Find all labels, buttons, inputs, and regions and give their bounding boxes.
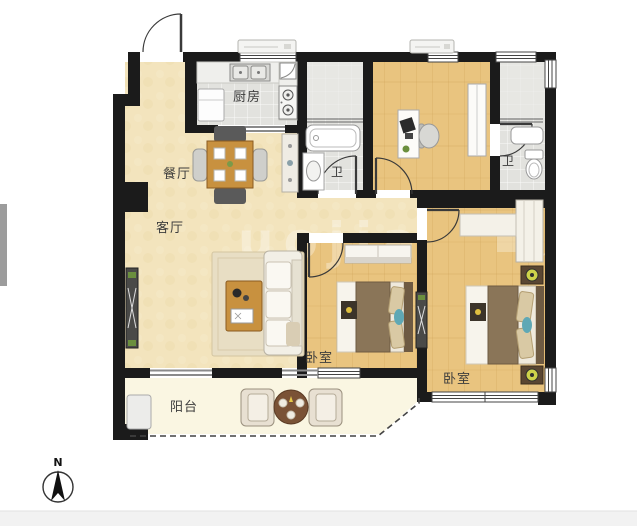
sofa	[264, 251, 302, 355]
table-plant	[227, 161, 233, 167]
footer-bar	[0, 511, 637, 526]
nightstand-top	[521, 266, 543, 284]
floor-plan-page: uojia om	[0, 0, 637, 526]
dining-chair-right	[253, 149, 267, 181]
vanity-sink	[303, 153, 324, 190]
dresser	[460, 214, 516, 236]
label-bedroom-right: 卧室	[443, 371, 471, 387]
entry-door	[143, 14, 181, 52]
plate	[235, 148, 246, 159]
throw-blanket	[286, 322, 300, 346]
bedroom-right-furniture	[460, 200, 544, 384]
balcony-chair-right	[309, 389, 342, 426]
accent-cushion	[522, 317, 532, 333]
tv-cabinet-living	[126, 268, 138, 348]
ac-units	[238, 40, 454, 53]
kitchen-stove	[279, 86, 297, 119]
balcony-chair-left	[241, 389, 274, 426]
bed	[337, 282, 413, 352]
label-living: 客厅	[156, 220, 184, 236]
headboard	[404, 282, 413, 352]
plate	[214, 170, 225, 181]
label-kitchen: 厨房	[233, 89, 261, 105]
balcony-table	[274, 390, 308, 424]
bathroom-right-shower-area	[500, 62, 545, 118]
bed	[466, 286, 544, 364]
bedroom-right-window	[432, 392, 538, 402]
label-dining: 餐厅	[163, 166, 191, 182]
right-wall-window-bottom	[545, 368, 556, 392]
tv-cabinet-bedroom	[416, 292, 427, 348]
scrollbar-thumb[interactable]	[0, 204, 7, 286]
balcony-cabinet	[127, 395, 151, 429]
kitchen-sink	[230, 64, 270, 81]
floor-plan: uojia om	[0, 0, 637, 526]
label-bedroom-mid: 卧室	[305, 350, 333, 366]
bathtub	[306, 125, 360, 151]
closet	[345, 245, 411, 263]
dining-chair-left	[193, 149, 207, 181]
ac-unit-study	[410, 40, 454, 53]
label-balcony: 阳台	[170, 400, 198, 415]
bedroom-mid-window	[318, 368, 360, 378]
plate	[235, 170, 246, 181]
bathroom-right-window	[496, 52, 536, 62]
bathtub	[511, 127, 543, 144]
plate	[214, 148, 225, 159]
north-label: N	[53, 456, 62, 469]
wardrobe	[516, 200, 543, 262]
refrigerator	[198, 89, 224, 121]
label-bath-right: 卫	[502, 154, 514, 168]
bathroom-left-shower-area	[307, 62, 363, 118]
label-bath-left: 卫	[331, 165, 343, 179]
headboard	[536, 286, 544, 364]
dining-chair-bottom	[214, 188, 246, 204]
desk	[398, 110, 419, 158]
compass: N	[43, 456, 73, 502]
toilet	[525, 150, 543, 179]
coffee-table	[226, 281, 262, 331]
balcony-sliding-door-left	[150, 371, 212, 376]
accent-cushion	[394, 309, 404, 325]
ac-unit-kitchen	[238, 40, 296, 53]
dining-chair-top	[214, 126, 246, 142]
right-wall-window-top	[545, 60, 556, 88]
kitchen-corner-unit	[280, 63, 296, 79]
nightstand-bottom	[521, 366, 543, 384]
desk-chair	[419, 124, 439, 148]
